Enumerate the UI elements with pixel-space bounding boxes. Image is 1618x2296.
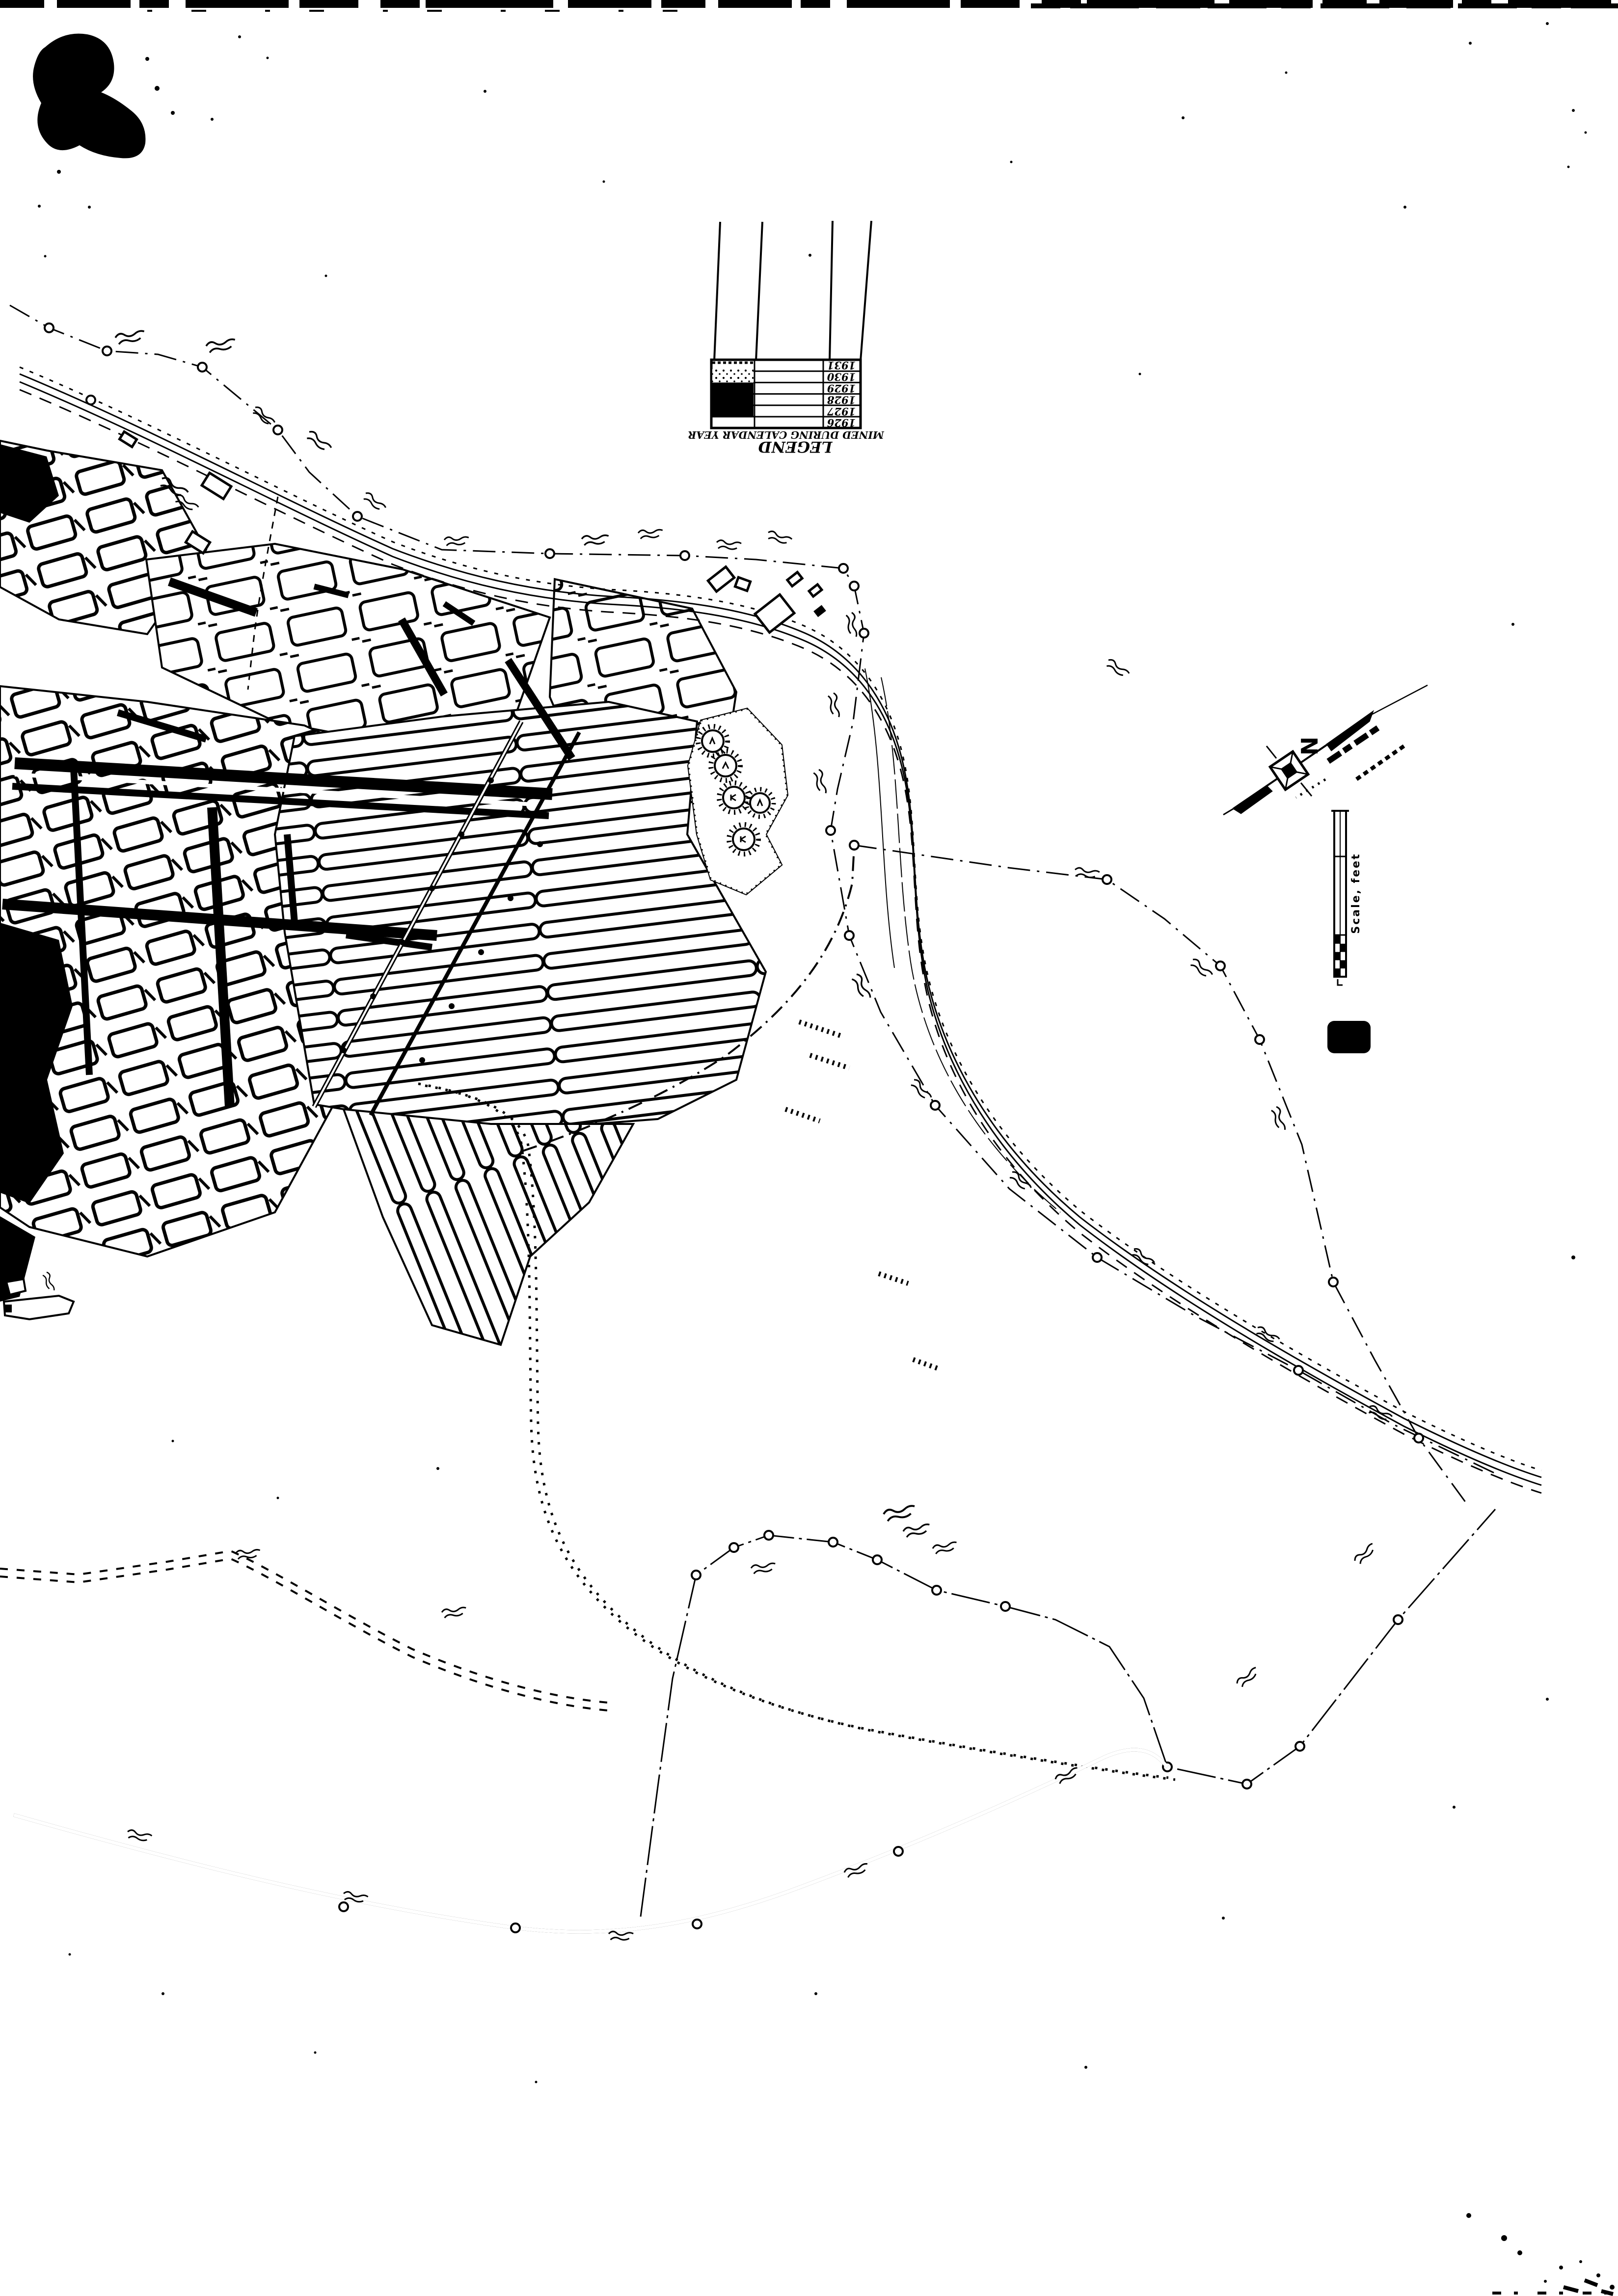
legend-year-label: 1930: [827, 371, 856, 383]
map-canvas: 1931 1930 1929 1928 1927 1926 MINED DURI…: [0, 0, 1618, 2296]
legend-swatch-solid: [712, 382, 754, 417]
legend-swatch-stipple: [712, 369, 754, 382]
legend-year-label: 1929: [827, 382, 856, 395]
legend-year-label: 1931: [827, 359, 856, 372]
legend-year-label: 1927: [827, 405, 856, 418]
sheet-number-plate: 2: [1327, 1021, 1371, 1053]
legend-title: LEGEND: [758, 438, 833, 455]
sheet-number-label: 2: [1334, 1028, 1365, 1046]
north-label: N: [1296, 737, 1323, 756]
legend-table: 1931 1930 1929 1928 1927 1926: [711, 359, 861, 429]
legend-year-label: 1928: [827, 394, 856, 406]
scale-label: Scale, feet: [1350, 853, 1362, 934]
legend-year-label: 1926: [827, 417, 856, 429]
